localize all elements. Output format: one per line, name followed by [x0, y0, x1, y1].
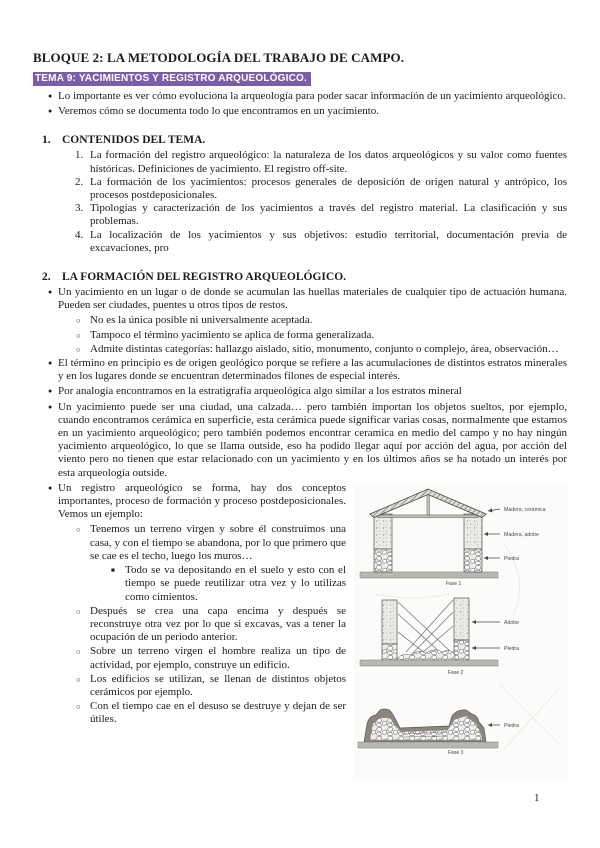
list-item: ○ Con el tiempo cae en el desuso se dest… — [33, 700, 567, 726]
list-item: 3. Tipologías y caracterización de los y… — [33, 202, 567, 228]
section-title: LA FORMACIÓN DEL REGISTRO ARQUEOLÓGICO. — [62, 271, 346, 283]
bullet-marker: ○ — [76, 673, 81, 686]
list-item: ○ Tampoco el término yacimiento se aplic… — [33, 329, 567, 342]
bullet-marker: ● — [48, 90, 52, 103]
bullet-marker: ● — [48, 286, 52, 299]
list-item: ○ Los edificios se utilizan, se llenan d… — [33, 673, 567, 699]
wrapped-content: Madera, cerámica Madera, adobe Piedra Fa… — [33, 482, 567, 727]
bullet-marker: ○ — [76, 605, 81, 618]
list-item: 4. La localización de los yacimientos y … — [33, 229, 567, 255]
doc-title: BLOQUE 2: LA METODOLOGÍA DEL TRABAJO DE … — [33, 50, 567, 66]
intro-bullet-text: Lo importante es ver cómo evoluciona la … — [58, 90, 566, 102]
item-text: Admite distintas categorías: hallazgo ai… — [90, 343, 559, 355]
bullet-marker: ○ — [76, 329, 81, 342]
bullet-marker: ● — [48, 357, 52, 370]
bullet-marker: ● — [48, 482, 52, 495]
list-item: ■ Todo se va depositando en el suelo y e… — [33, 564, 567, 604]
item-text: Con el tiempo cae en el desuso se destru… — [90, 700, 346, 725]
bullet-marker: ■ — [111, 564, 115, 577]
item-text: No es la única posible ni universalmente… — [90, 314, 312, 326]
list-item: ● Un yacimiento en un lugar o de donde s… — [33, 286, 567, 312]
list-item: ● El término en principio es de origen g… — [33, 357, 567, 383]
item-text: Todo se va depositando en el suelo y est… — [125, 564, 346, 602]
item-text: Un registro arqueológico se forma, hay d… — [58, 482, 346, 520]
intro-bullet: ● Veremos cómo se documenta todo lo que … — [33, 105, 567, 118]
page-number: 1 — [534, 792, 540, 804]
item-number: 2. — [75, 176, 83, 189]
item-text: Los edificios se utilizan, se llenan de … — [90, 673, 346, 698]
item-text: Un yacimiento en un lugar o de donde se … — [58, 286, 567, 311]
fase3-caption: Fase 3 — [448, 750, 464, 756]
section-number: 2. — [42, 271, 51, 283]
bullet-marker: ○ — [76, 314, 81, 327]
bullet-marker: ● — [48, 401, 52, 414]
item-number: 4. — [75, 229, 83, 242]
item-number: 1. — [75, 149, 83, 162]
list-item: 2. La formación de los yacimientos: proc… — [33, 176, 567, 202]
list-item: ○ Sobre un terreno virgen el hombre real… — [33, 645, 567, 671]
list-item: ● Por analogía encontramos en la estrati… — [33, 385, 567, 398]
bullet-marker: ● — [48, 105, 52, 118]
list-item: 1. La formación del registro arqueológic… — [33, 149, 567, 175]
item-text: Sobre un terreno virgen el hombre realiz… — [90, 645, 346, 670]
bullet-marker: ○ — [76, 645, 81, 658]
item-text: La formación del registro arqueológico: … — [90, 149, 567, 174]
item-text: La formación de los yacimientos: proceso… — [90, 176, 567, 201]
topic-highlight: TEMA 9: YACIMIENTOS Y REGISTRO ARQUEOLÓG… — [33, 72, 311, 86]
item-text: La localización de los yacimientos y sus… — [90, 229, 567, 254]
list-item: ○ No es la única posible ni universalmen… — [33, 314, 567, 327]
list-item: ● Un registro arqueológico se forma, hay… — [33, 482, 567, 522]
section-title: CONTENIDOS DEL TEMA. — [62, 134, 205, 146]
item-text: Después se crea una capa encima y despué… — [90, 605, 346, 643]
bullet-marker: ● — [48, 385, 52, 398]
list-item: ○ Tenemos un terreno virgen y sobre él c… — [33, 523, 567, 563]
list-item: ○ Admite distintas categorías: hallazgo … — [33, 343, 567, 356]
bullet-marker: ○ — [76, 343, 81, 356]
bullet-marker: ○ — [76, 700, 81, 713]
item-text: Tenemos un terreno virgen y sobre él con… — [90, 523, 346, 561]
section-number: 1. — [42, 134, 51, 146]
bullet-marker: ○ — [76, 523, 81, 536]
intro-bullet: ● Lo importante es ver cómo evoluciona l… — [33, 90, 567, 103]
intro-bullet-text: Veremos cómo se documenta todo lo que en… — [58, 105, 379, 117]
item-text: Un yacimiento puede ser una ciudad, una … — [58, 401, 567, 479]
item-number: 3. — [75, 202, 83, 215]
document-page: BLOQUE 2: LA METODOLOGÍA DEL TRABAJO DE … — [0, 0, 600, 848]
item-text: El término en principio es de origen geo… — [58, 357, 567, 382]
section2-heading: 2. LA FORMACIÓN DEL REGISTRO ARQUEOLÓGIC… — [33, 271, 567, 283]
item-text: Por analogía encontramos en la estratigr… — [58, 385, 462, 397]
list-item: ● Un yacimiento puede ser una ciudad, un… — [33, 401, 567, 480]
list-item: ○ Después se crea una capa encima y desp… — [33, 605, 567, 645]
section1-heading: 1. CONTENIDOS DEL TEMA. — [33, 134, 567, 146]
item-text: Tipologías y caracterización de los yaci… — [90, 202, 567, 227]
item-text: Tampoco el término yacimiento se aplica … — [90, 329, 374, 341]
